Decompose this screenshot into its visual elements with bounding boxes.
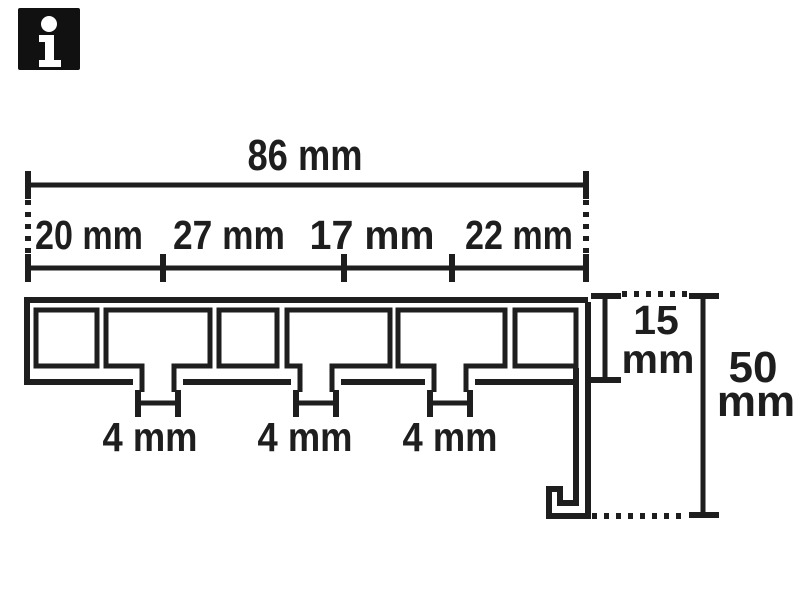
diagram-canvas: 86 mm 20 mm 27 mm 17 mm 22 mm <box>0 0 800 600</box>
slot-width-label-2: 4 mm <box>258 414 353 460</box>
profile-chamber <box>36 310 97 366</box>
rail-dimension-diagram: 86 mm 20 mm 27 mm 17 mm 22 mm <box>0 0 800 600</box>
total-width-label: 86 mm <box>248 131 363 180</box>
dimension-segments <box>28 254 586 282</box>
profile-chamber <box>219 310 277 366</box>
info-icon <box>18 8 80 70</box>
segment-label-4: 22 mm <box>465 212 573 258</box>
inner-height-unit: mm <box>622 336 695 382</box>
slot-width-label-3: 4 mm <box>403 414 498 460</box>
segment-label-3: 17 mm <box>310 212 435 258</box>
profile-chamber <box>515 310 576 366</box>
slot-width-label-1: 4 mm <box>103 414 198 460</box>
segment-label-2: 27 mm <box>173 212 285 258</box>
outer-height-unit: mm <box>717 377 795 426</box>
dimension-slots <box>138 390 470 417</box>
segment-label-1: 20 mm <box>35 212 143 258</box>
info-icon-dot <box>41 16 57 32</box>
profile-right-wall-hook <box>549 302 588 516</box>
